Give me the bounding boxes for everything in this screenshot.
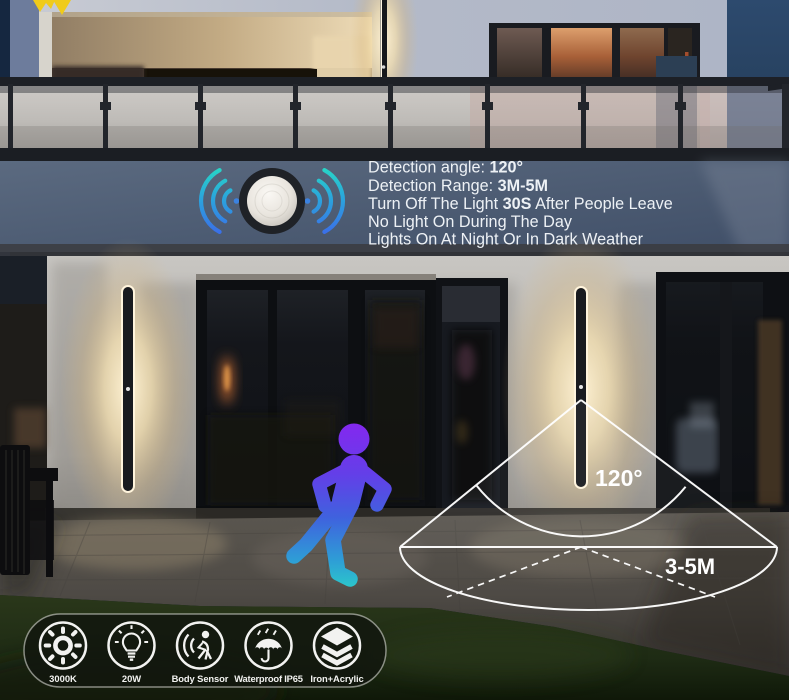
svg-text:3-5M: 3-5M <box>665 554 715 579</box>
svg-text:120°: 120° <box>595 465 643 491</box>
svg-text:Waterproof IP65: Waterproof IP65 <box>234 673 303 684</box>
svg-text:Turn Off The Light 30S After P: Turn Off The Light 30S After People Leav… <box>368 195 673 213</box>
svg-text:Detection angle: 120°: Detection angle: 120° <box>368 159 523 177</box>
svg-text:3000K: 3000K <box>49 673 77 684</box>
svg-text:Lights On At Night Or In Dark: Lights On At Night Or In Dark Weather <box>368 231 644 249</box>
svg-text:Body Sensor: Body Sensor <box>172 673 229 684</box>
svg-text:20W: 20W <box>122 673 141 684</box>
svg-text:Detection Range: 3M-5M: Detection Range: 3M-5M <box>368 177 548 195</box>
svg-text:No Light On During The Day: No Light On During The Day <box>368 213 573 231</box>
svg-text:Iron+Acrylic: Iron+Acrylic <box>310 673 363 684</box>
